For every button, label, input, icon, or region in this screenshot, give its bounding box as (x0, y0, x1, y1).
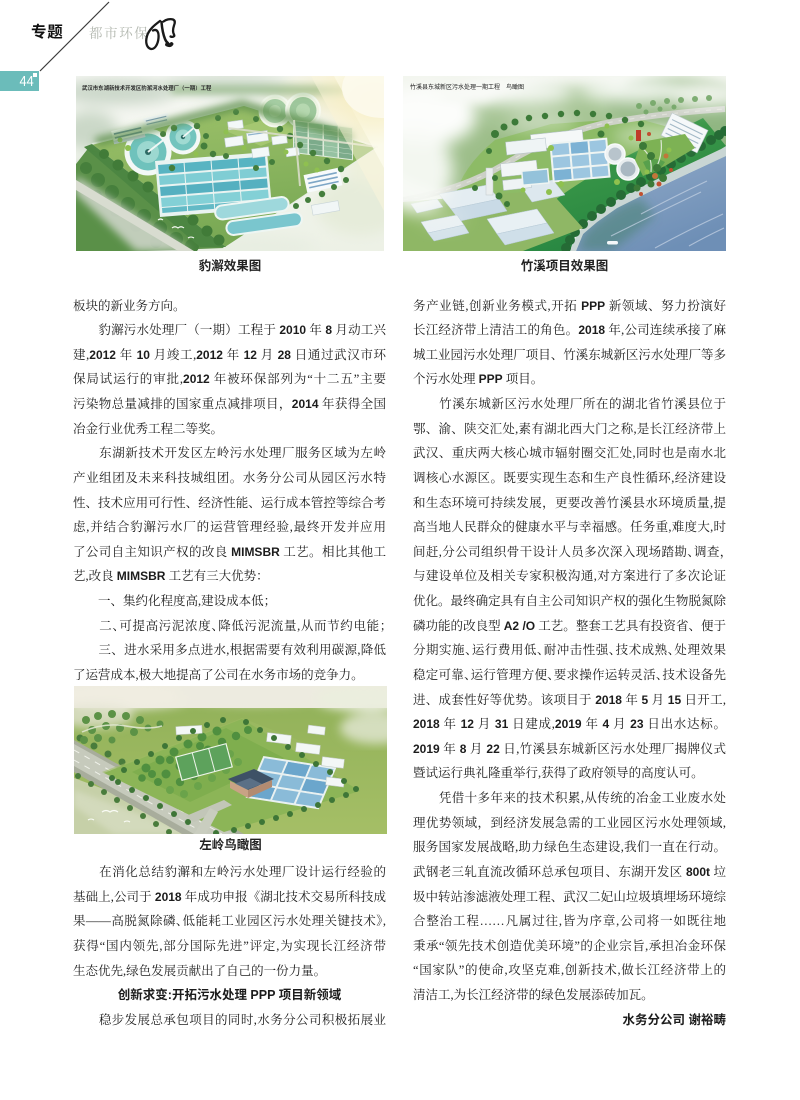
svg-text:武汉市东湖新技术开发区豹澥河水处理厂（一期）工程: 武汉市东湖新技术开发区豹澥河水处理厂（一期）工程 (82, 84, 212, 92)
svg-text:竹溪县东城新区污水处理一期工程 鸟瞰图: 竹溪县东城新区污水处理一期工程 鸟瞰图 (410, 83, 524, 91)
